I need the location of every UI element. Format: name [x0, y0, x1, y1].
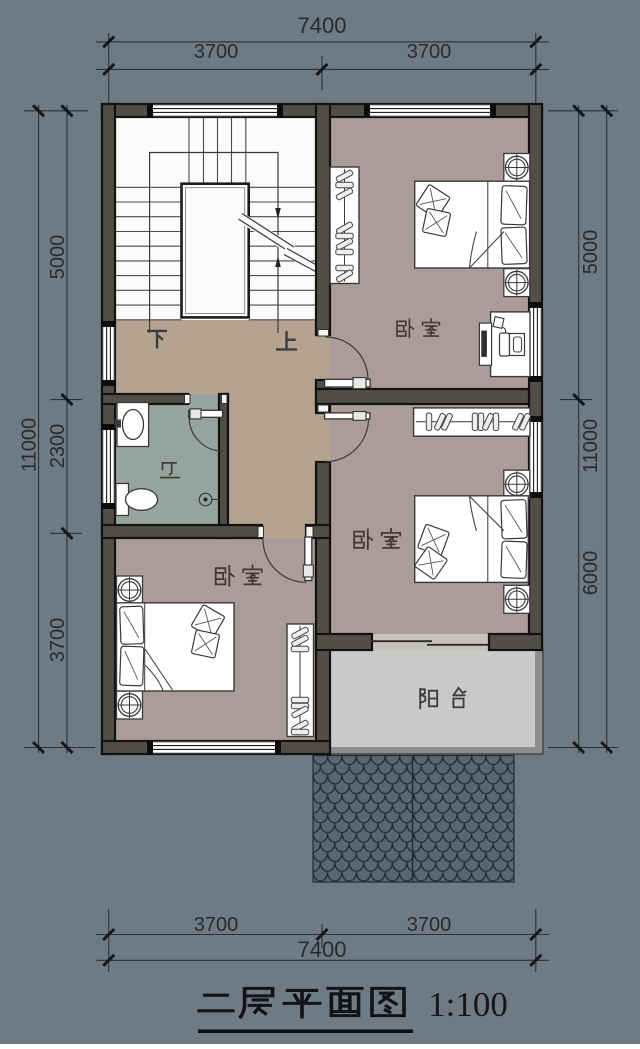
svg-text:7400: 7400: [298, 13, 347, 38]
svg-text:5000: 5000: [580, 230, 602, 275]
svg-text:6000: 6000: [580, 551, 602, 596]
svg-text:3700: 3700: [407, 41, 452, 63]
svg-text:3700: 3700: [194, 914, 239, 936]
svg-text:3700: 3700: [194, 41, 239, 63]
svg-text:3700: 3700: [407, 914, 452, 936]
svg-text:11000: 11000: [580, 419, 602, 473]
svg-text:2300: 2300: [47, 424, 69, 469]
svg-text:1:100: 1:100: [428, 985, 508, 1024]
svg-text:3700: 3700: [47, 618, 69, 663]
svg-text:11000: 11000: [19, 418, 41, 472]
svg-text:5000: 5000: [47, 235, 69, 280]
svg-text:7400: 7400: [298, 937, 347, 962]
